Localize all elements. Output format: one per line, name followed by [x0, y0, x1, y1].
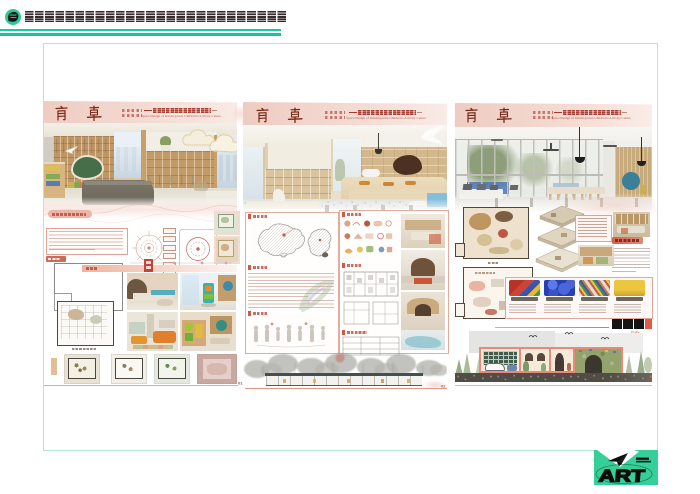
svg-text:ART: ART — [598, 467, 646, 485]
